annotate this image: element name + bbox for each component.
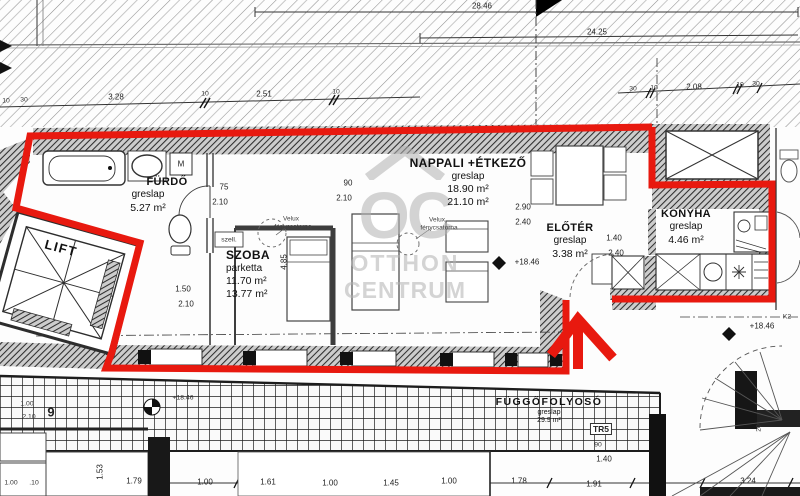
room-name: SZOBA bbox=[226, 248, 304, 263]
dimension-label: 1.00 bbox=[197, 478, 213, 487]
dimension-label: 4.85 bbox=[280, 254, 289, 270]
dimension-label: 2.08 bbox=[686, 83, 702, 92]
dimension-label: 2.10 bbox=[212, 198, 228, 207]
dimension-label: 2.10 bbox=[22, 414, 35, 421]
room-label-eloter: ELŐTÉR greslap 3.38 m² bbox=[532, 222, 608, 260]
dimension-label: 1.50 bbox=[175, 285, 191, 294]
dimension-label: szell. bbox=[221, 237, 237, 244]
room-finish: greslap bbox=[484, 409, 614, 417]
dimension-label: fénycsatorna bbox=[420, 225, 457, 232]
dimension-label: 28.46 bbox=[472, 2, 492, 11]
dimension-label: 90 bbox=[594, 442, 602, 449]
room-name: FÜRDŐ bbox=[112, 176, 222, 189]
label-layer: FÜRDŐ greslap 5.27 m² SZOBA parketta 11.… bbox=[0, 0, 800, 496]
dimension-label: 10 bbox=[736, 82, 744, 89]
dimension-label: 1.00 bbox=[441, 477, 457, 486]
dimension-label: fénycsatorna bbox=[274, 224, 311, 231]
dimension-label: 30 bbox=[20, 97, 28, 104]
dimension-label: 1.00 bbox=[322, 479, 338, 488]
room-area: 13.77 m² bbox=[226, 288, 304, 301]
room-area: 11.70 m² bbox=[226, 275, 304, 288]
tr5-label: TR5 bbox=[590, 423, 612, 435]
room-name: FÜGGŐFOLYOSÓ bbox=[484, 396, 614, 409]
grid-line-label: 9 bbox=[47, 405, 54, 420]
dimension-label: 30 bbox=[629, 86, 637, 93]
dimension-label: 2.40 bbox=[608, 249, 624, 258]
room-label-konyha: KONYHA greslap 4.46 m² bbox=[650, 208, 722, 246]
dimension-label: 75 bbox=[220, 183, 229, 192]
floor-plan: OC OTTHON CENTRUM FÜRDŐ greslap 5.27 m² … bbox=[0, 0, 800, 496]
dimension-label: 30 bbox=[752, 81, 760, 88]
elevation-label: +18.46 bbox=[515, 258, 540, 267]
dimension-label: 10 bbox=[650, 85, 658, 92]
room-area: 5.27 m² bbox=[112, 202, 184, 215]
dimension-label: 1.79 bbox=[126, 477, 142, 486]
room-area: 3.38 m² bbox=[532, 248, 608, 261]
room-finish: greslap bbox=[532, 235, 608, 247]
elevation-label: +18.46 bbox=[173, 395, 194, 402]
dimension-label: 1.00 bbox=[4, 480, 17, 487]
room-finish: greslap bbox=[394, 171, 542, 183]
dimension-label: 1.78 bbox=[511, 477, 527, 486]
room-area: 4.46 m² bbox=[650, 234, 722, 247]
dimension-label: 2.10 bbox=[178, 300, 194, 309]
dimension-label: 1.61 bbox=[260, 478, 276, 487]
dimension-label: 1.45 bbox=[383, 479, 399, 488]
room-area: 18.90 m² bbox=[394, 183, 542, 196]
dimension-label: 1.40 bbox=[606, 234, 622, 243]
room-label-furdo: FÜRDŐ greslap 5.27 m² bbox=[112, 176, 222, 214]
dimension-label: 1.40 bbox=[596, 455, 612, 464]
dimension-label: 1.91 bbox=[586, 480, 602, 489]
dimension-label: K2 bbox=[783, 314, 791, 321]
dimension-label: 2.51 bbox=[256, 90, 272, 99]
dimension-label: 1.53 bbox=[96, 464, 105, 480]
washing-machine-label: M bbox=[178, 160, 185, 169]
room-label-fuggofolyoso: FÜGGŐFOLYOSÓ greslap 29.9 m² bbox=[484, 396, 614, 425]
room-finish: parketta bbox=[226, 263, 304, 275]
dimension-label: 1.00 bbox=[20, 401, 33, 408]
dimension-label: 24.25 bbox=[587, 28, 607, 37]
dimension-label: 2.40 bbox=[515, 218, 531, 227]
dimension-label: 20 bbox=[756, 424, 763, 432]
dimension-label: 2.10 bbox=[336, 194, 352, 203]
room-finish: greslap bbox=[650, 221, 722, 233]
dimension-label: 3.24 bbox=[740, 477, 756, 486]
room-name: ELŐTÉR bbox=[532, 222, 608, 235]
dimension-label: 10 bbox=[2, 98, 10, 105]
room-label-nappali: NAPPALI +ÉTKEZŐ greslap 18.90 m² 21.10 m… bbox=[394, 156, 542, 208]
room-label-szoba: SZOBA parketta 11.70 m² 13.77 m² bbox=[226, 248, 304, 300]
room-finish: greslap bbox=[112, 189, 184, 201]
dimension-label: Velux bbox=[429, 217, 445, 224]
dimension-label: 3.28 bbox=[108, 93, 124, 102]
dimension-label: 10 bbox=[201, 91, 209, 98]
room-name: KONYHA bbox=[650, 208, 722, 221]
room-label-lift: LIFT bbox=[43, 236, 105, 266]
dimension-label: 10 bbox=[332, 89, 340, 96]
dimension-label: .10 bbox=[29, 480, 38, 487]
dimension-label: 2.90 bbox=[515, 203, 531, 212]
elevation-label: +18.46 bbox=[750, 322, 775, 331]
dimension-label: Velux bbox=[283, 216, 299, 223]
room-name: NAPPALI +ÉTKEZŐ bbox=[394, 156, 542, 171]
dimension-label: 90 bbox=[344, 179, 353, 188]
